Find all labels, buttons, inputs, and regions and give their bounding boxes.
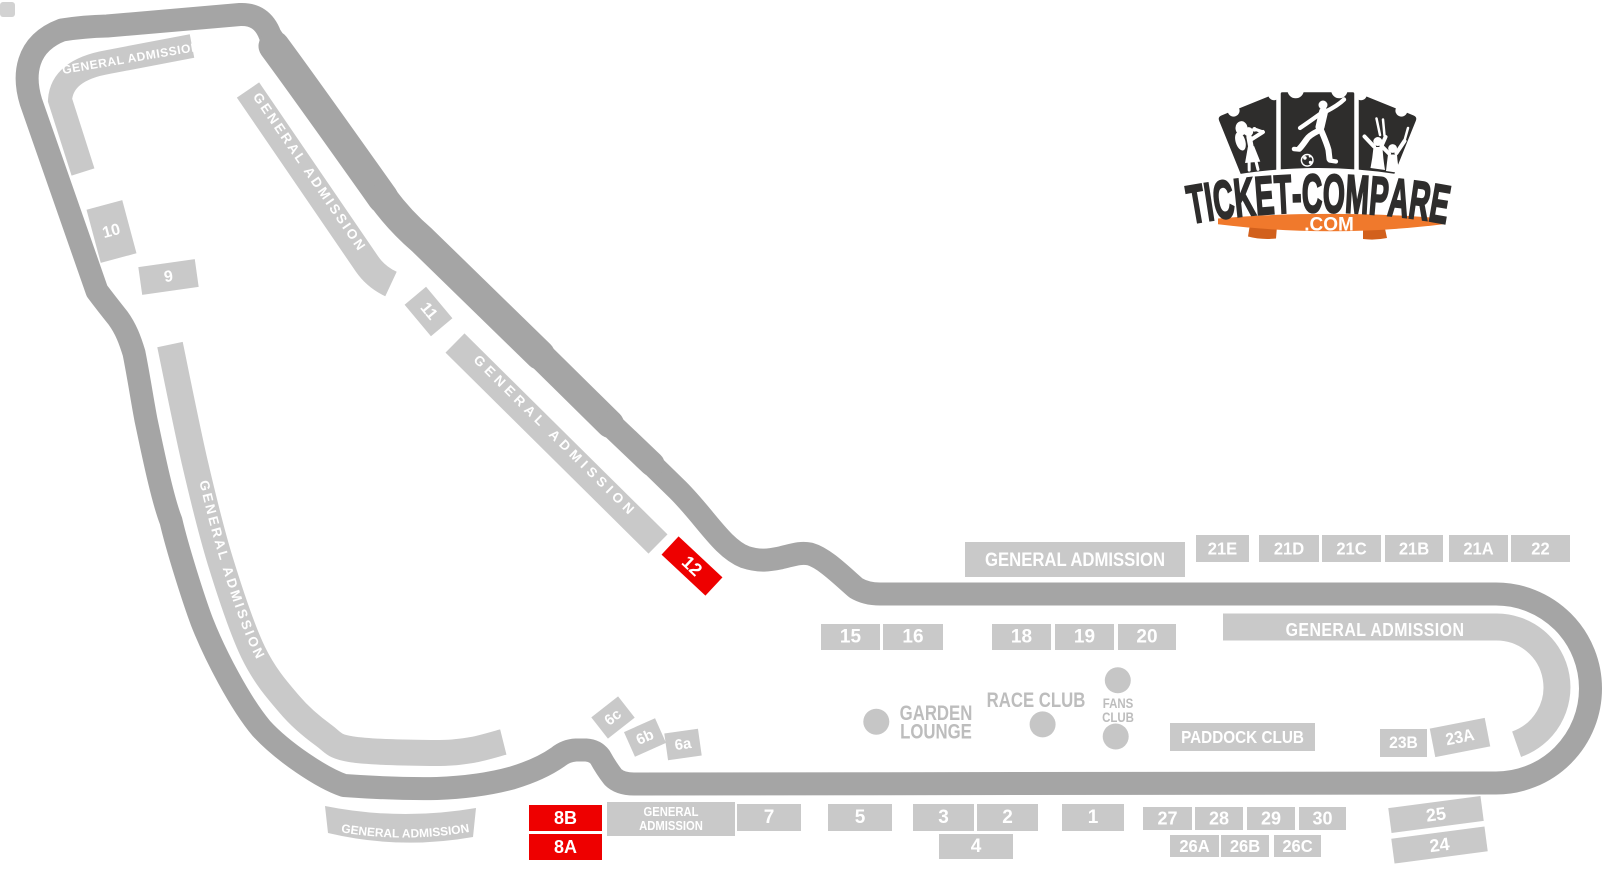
- svg-text:3: 3: [938, 807, 949, 828]
- svg-text:FANS: FANS: [1103, 696, 1134, 711]
- svg-text:23B: 23B: [1389, 734, 1418, 753]
- svg-text:-: -: [1291, 165, 1302, 225]
- svg-text:26A: 26A: [1179, 836, 1210, 857]
- svg-text:26C: 26C: [1282, 836, 1312, 857]
- svg-text:2: 2: [1002, 807, 1013, 828]
- svg-text:25: 25: [1425, 803, 1447, 825]
- svg-text:8A: 8A: [554, 837, 577, 857]
- svg-text:16: 16: [902, 627, 923, 648]
- svg-text:ADMISSION: ADMISSION: [639, 818, 703, 833]
- svg-text:24: 24: [1428, 834, 1450, 856]
- svg-text:29: 29: [1261, 809, 1281, 829]
- svg-text:5: 5: [855, 807, 866, 828]
- svg-text:28: 28: [1209, 809, 1229, 829]
- svg-text:21C: 21C: [1336, 538, 1366, 559]
- svg-text:RACE CLUB: RACE CLUB: [987, 689, 1086, 712]
- svg-text:30: 30: [1312, 809, 1332, 829]
- svg-text:22: 22: [1531, 538, 1549, 559]
- svg-text:26B: 26B: [1230, 836, 1260, 857]
- svg-text:19: 19: [1074, 627, 1095, 648]
- svg-text:27: 27: [1157, 809, 1177, 829]
- svg-text:7: 7: [764, 807, 775, 828]
- svg-text:C: C: [1302, 164, 1323, 224]
- svg-text:20: 20: [1136, 627, 1157, 648]
- svg-text:21B: 21B: [1399, 538, 1429, 559]
- svg-text:O: O: [1322, 164, 1345, 225]
- svg-text:21E: 21E: [1208, 538, 1237, 559]
- svg-text:21D: 21D: [1274, 538, 1304, 559]
- svg-text:8B: 8B: [554, 808, 577, 828]
- svg-text:18: 18: [1011, 627, 1032, 648]
- svg-text:GENERAL ADMISSION: GENERAL ADMISSION: [985, 549, 1165, 570]
- svg-text:6a: 6a: [674, 735, 694, 754]
- svg-text:T: T: [1273, 165, 1293, 226]
- svg-text:4: 4: [971, 836, 982, 857]
- svg-text:GENERAL: GENERAL: [644, 804, 699, 819]
- svg-text:CLUB: CLUB: [1102, 710, 1134, 725]
- svg-text:21A: 21A: [1463, 538, 1494, 559]
- svg-text:LOUNGE: LOUNGE: [900, 721, 972, 744]
- svg-text:GENERAL ADMISSION: GENERAL ADMISSION: [1286, 619, 1465, 640]
- svg-text:M: M: [1344, 165, 1371, 226]
- svg-text:15: 15: [840, 627, 862, 648]
- svg-text:1: 1: [1088, 807, 1099, 828]
- svg-text:PADDOCK CLUB: PADDOCK CLUB: [1181, 727, 1304, 747]
